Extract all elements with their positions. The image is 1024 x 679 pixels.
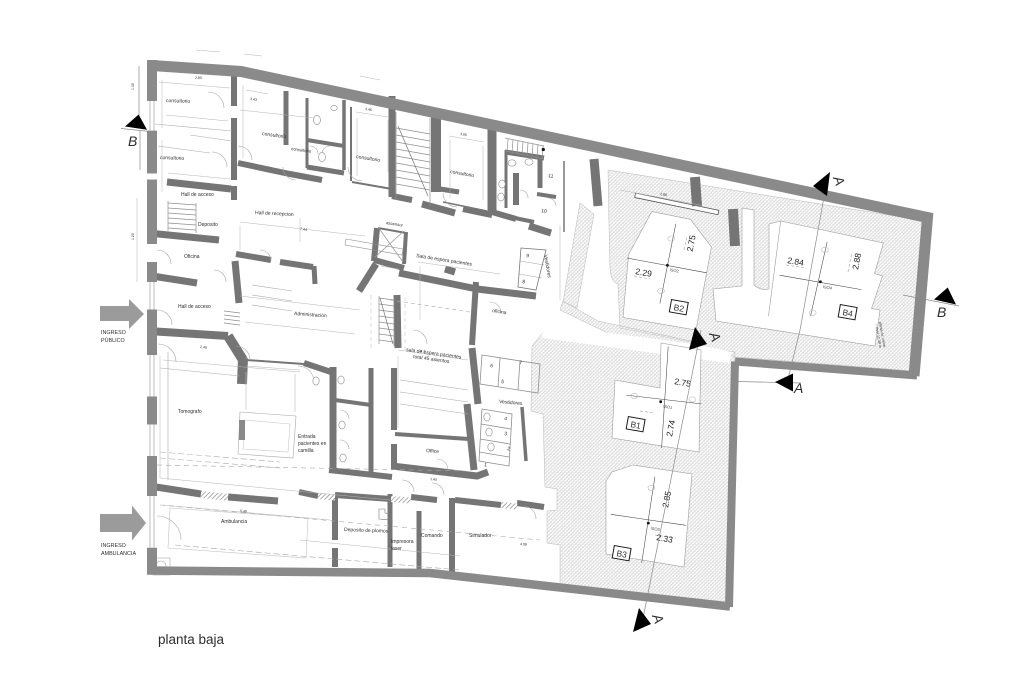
svg-text:Hall de acceso: Hall de acceso bbox=[178, 304, 211, 310]
svg-text:Hall de acceso: Hall de acceso bbox=[181, 192, 214, 198]
svg-text:camilla: camilla bbox=[298, 448, 314, 454]
svg-text:1.40: 1.40 bbox=[131, 83, 135, 90]
svg-text:2.46: 2.46 bbox=[200, 345, 207, 350]
svg-text:Deposito: Deposito bbox=[198, 222, 218, 228]
svg-text:Office: Office bbox=[426, 448, 440, 455]
svg-text:B: B bbox=[128, 133, 137, 149]
svg-text:B3: B3 bbox=[616, 548, 628, 560]
svg-text:4.08: 4.08 bbox=[520, 542, 527, 547]
svg-text:Entrada: Entrada bbox=[298, 434, 316, 440]
svg-text:B1: B1 bbox=[630, 419, 642, 431]
svg-text:B: B bbox=[937, 304, 946, 320]
svg-text:B2: B2 bbox=[673, 302, 685, 314]
svg-text:B4: B4 bbox=[842, 307, 854, 319]
svg-text:2.80: 2.80 bbox=[195, 76, 202, 80]
svg-text:PÚBLICO: PÚBLICO bbox=[101, 337, 125, 344]
svg-text:INGRESO: INGRESO bbox=[101, 330, 126, 336]
svg-text:Comando: Comando bbox=[421, 533, 443, 539]
svg-text:pacientes en: pacientes en bbox=[298, 441, 327, 447]
svg-text:Impresora: Impresora bbox=[391, 539, 414, 545]
svg-text:consultorio: consultorio bbox=[160, 155, 185, 162]
svg-text:consultorio: consultorio bbox=[166, 98, 191, 105]
svg-text:AMBULANCIA: AMBULANCIA bbox=[101, 551, 136, 557]
svg-text:1.20: 1.20 bbox=[131, 233, 135, 240]
svg-text:Simulador: Simulador bbox=[469, 533, 492, 539]
svg-text:laser: laser bbox=[391, 546, 402, 552]
svg-text:planta baja: planta baja bbox=[158, 632, 225, 647]
svg-text:INGRESO: INGRESO bbox=[101, 543, 126, 549]
svg-text:Oficina: Oficina bbox=[184, 254, 200, 260]
svg-text:A: A bbox=[793, 380, 803, 396]
svg-text:5.48: 5.48 bbox=[240, 509, 247, 514]
svg-text:Ambulancia: Ambulancia bbox=[221, 519, 247, 525]
svg-text:Tomografo: Tomografo bbox=[178, 409, 202, 415]
